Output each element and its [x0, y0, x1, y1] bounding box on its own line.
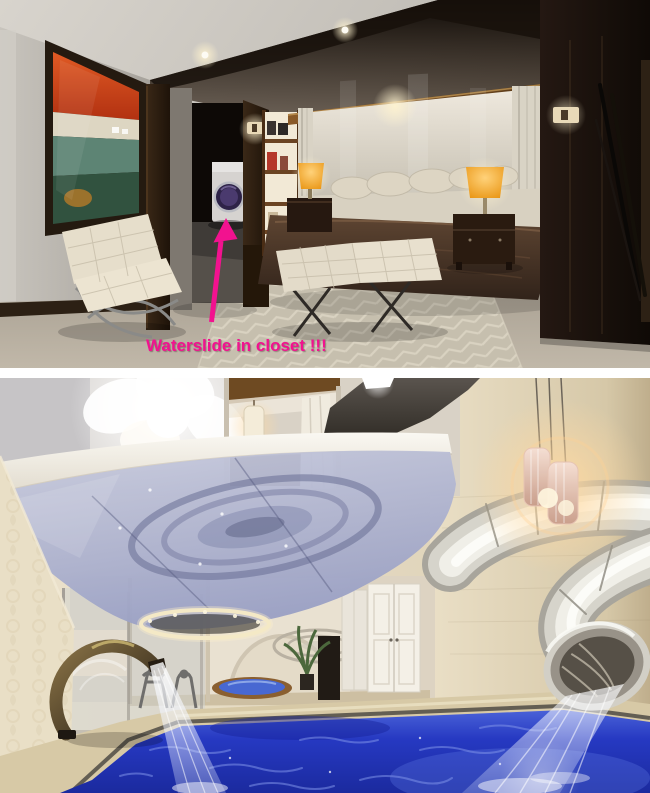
photo-divider	[0, 368, 650, 378]
double-doors	[342, 584, 420, 692]
washing-machine-slide-entrance	[208, 162, 248, 230]
photo-top-bedroom: Waterslide in closet !!!	[0, 0, 650, 368]
photo-frame	[278, 123, 288, 135]
oculus-light-ring	[141, 610, 269, 638]
red-ornament	[267, 152, 277, 170]
pool-scene	[0, 378, 650, 793]
bench-cushion	[352, 238, 442, 283]
wardrobe	[540, 0, 650, 352]
photo-bottom-pool	[0, 378, 650, 793]
photo-frame	[267, 121, 276, 135]
floor-shadow	[173, 302, 257, 318]
wall-corner	[0, 30, 16, 318]
annotated-photo-collage: Waterslide in closet !!!	[0, 0, 650, 793]
bedroom-scene	[0, 0, 650, 368]
dark-cabinet	[318, 636, 340, 700]
alcove-downlight	[373, 84, 417, 128]
jacuzzi	[212, 677, 292, 699]
wall-sconce-right	[546, 95, 586, 135]
